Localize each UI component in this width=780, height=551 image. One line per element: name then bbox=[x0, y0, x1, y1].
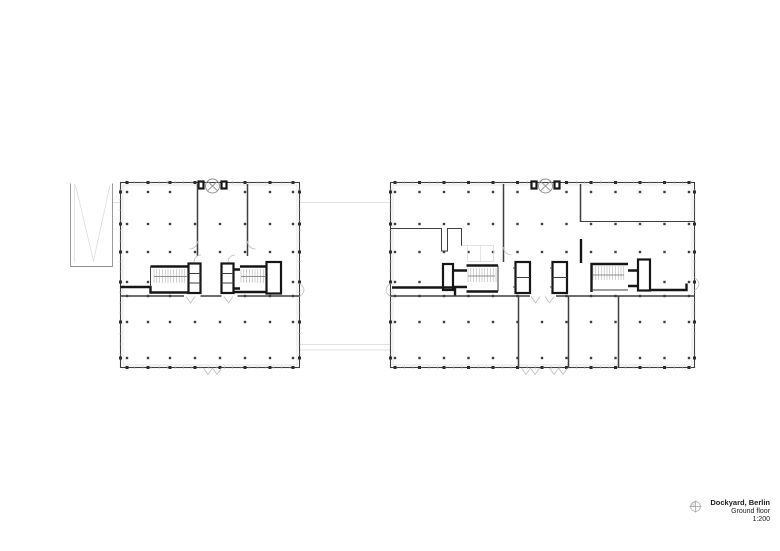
elevator-shaft bbox=[222, 264, 234, 294]
heavy-wall bbox=[392, 288, 455, 296]
door-swing bbox=[190, 241, 256, 249]
column-dot bbox=[292, 223, 294, 225]
column-dot bbox=[219, 251, 221, 253]
column-dot bbox=[590, 251, 592, 253]
project-title: Dockyard, Berlin bbox=[710, 499, 770, 508]
column-dot bbox=[614, 191, 616, 193]
facade-column bbox=[119, 251, 122, 254]
facade-column bbox=[244, 366, 247, 369]
shaft-light bbox=[462, 246, 494, 262]
column-dot bbox=[590, 321, 592, 323]
column-dot bbox=[147, 281, 149, 283]
facade-column bbox=[126, 366, 129, 369]
column-dot bbox=[688, 357, 690, 359]
facade-column bbox=[688, 181, 691, 184]
column-dot bbox=[590, 191, 592, 193]
facade-column bbox=[541, 366, 544, 369]
core-right bbox=[194, 255, 281, 294]
revolving-door-entrance bbox=[199, 179, 227, 193]
facade-column bbox=[292, 366, 295, 369]
column-dot bbox=[516, 251, 518, 253]
facade-column bbox=[693, 321, 696, 324]
facade-column bbox=[492, 366, 495, 369]
column-dot bbox=[443, 321, 445, 323]
facade-column bbox=[244, 181, 247, 184]
facade-column bbox=[614, 181, 617, 184]
ramp-slope-lines bbox=[75, 184, 111, 263]
column-dot bbox=[688, 281, 690, 283]
door-swing bbox=[194, 255, 235, 262]
column-dot bbox=[126, 191, 128, 193]
column-dot bbox=[590, 357, 592, 359]
facade-column bbox=[147, 181, 150, 184]
column-dot bbox=[663, 357, 665, 359]
column-dot bbox=[418, 321, 420, 323]
column-dot bbox=[639, 357, 641, 359]
double-door bbox=[522, 368, 568, 375]
facade-column bbox=[394, 181, 397, 184]
facade-column bbox=[119, 281, 122, 284]
column-dot bbox=[394, 281, 396, 283]
column-dot bbox=[688, 191, 690, 193]
column-dot bbox=[492, 321, 494, 323]
facade-column bbox=[688, 366, 691, 369]
facade-column bbox=[298, 251, 301, 254]
facade-column bbox=[126, 181, 129, 184]
facade-column bbox=[119, 223, 122, 226]
column-dot bbox=[418, 357, 420, 359]
column-dot bbox=[269, 191, 271, 193]
exit-door-swing bbox=[300, 284, 305, 297]
service-shaft bbox=[443, 264, 453, 290]
column-dot bbox=[292, 251, 294, 253]
facade-column bbox=[565, 181, 568, 184]
column-dot bbox=[126, 251, 128, 253]
column-dot bbox=[541, 223, 543, 225]
facade-column bbox=[467, 181, 470, 184]
lobby-walls bbox=[198, 184, 248, 256]
column-dot bbox=[219, 357, 221, 359]
floor-label: Ground floor bbox=[710, 508, 770, 517]
facade-column bbox=[298, 223, 301, 226]
column-dot bbox=[467, 223, 469, 225]
column-dot bbox=[467, 321, 469, 323]
facade-column bbox=[614, 366, 617, 369]
facade-column bbox=[147, 366, 150, 369]
entrance-door-leaf bbox=[532, 182, 537, 189]
entrance-door-leaf bbox=[555, 182, 560, 189]
column-dot bbox=[614, 357, 616, 359]
facade-column bbox=[693, 191, 696, 194]
partition-walls bbox=[519, 296, 619, 368]
facade-column bbox=[418, 366, 421, 369]
column-dot bbox=[169, 357, 171, 359]
floor-plan-drawing bbox=[0, 0, 780, 551]
facade-column bbox=[590, 181, 593, 184]
column-dot bbox=[639, 223, 641, 225]
column-dot bbox=[443, 191, 445, 193]
facade-column bbox=[639, 181, 642, 184]
facade-column bbox=[693, 281, 696, 284]
facade-column bbox=[389, 251, 392, 254]
column-dot bbox=[418, 251, 420, 253]
column-dot bbox=[492, 191, 494, 193]
facade-column bbox=[269, 366, 272, 369]
column-dot bbox=[541, 357, 543, 359]
heavy-wall bbox=[650, 284, 687, 291]
service-shaft bbox=[267, 262, 282, 294]
facade-column bbox=[298, 191, 301, 194]
column-dot bbox=[394, 321, 396, 323]
column-dot bbox=[467, 191, 469, 193]
column-dot bbox=[169, 251, 171, 253]
column-dot bbox=[541, 321, 543, 323]
column-dot bbox=[244, 357, 246, 359]
column-dot bbox=[639, 191, 641, 193]
column-dot bbox=[126, 281, 128, 283]
column-dot bbox=[516, 223, 518, 225]
elevator-bank bbox=[513, 262, 567, 293]
column-dot bbox=[614, 223, 616, 225]
building-left bbox=[119, 179, 304, 375]
column-dot bbox=[292, 321, 294, 323]
facade-column bbox=[443, 181, 446, 184]
column-dot bbox=[394, 357, 396, 359]
facade-column bbox=[119, 191, 122, 194]
column-dot bbox=[614, 321, 616, 323]
entrance-door-leaf bbox=[199, 182, 204, 189]
door-swing bbox=[504, 247, 512, 255]
column-dot bbox=[443, 357, 445, 359]
column-dot bbox=[244, 223, 246, 225]
facade-column bbox=[693, 251, 696, 254]
column-dot bbox=[688, 251, 690, 253]
facade-column bbox=[516, 181, 519, 184]
column-dot bbox=[219, 223, 221, 225]
facade-column bbox=[418, 181, 421, 184]
facade-column bbox=[443, 366, 446, 369]
facade-column bbox=[194, 366, 197, 369]
column-dot bbox=[244, 321, 246, 323]
column-dot bbox=[663, 191, 665, 193]
facade-column bbox=[389, 223, 392, 226]
facade-column bbox=[389, 357, 392, 360]
column-dot bbox=[565, 321, 567, 323]
parking-ramp bbox=[71, 184, 113, 267]
facade-column bbox=[194, 181, 197, 184]
corridor-doors bbox=[531, 297, 554, 304]
column-dot bbox=[688, 223, 690, 225]
column-dot bbox=[194, 251, 196, 253]
column-dot bbox=[292, 281, 294, 283]
facade-column bbox=[119, 321, 122, 324]
column-dot bbox=[126, 357, 128, 359]
column-dot bbox=[418, 223, 420, 225]
column-dot bbox=[194, 357, 196, 359]
column-dot bbox=[147, 223, 149, 225]
column-dot bbox=[126, 321, 128, 323]
scale-label: 1:200 bbox=[710, 516, 770, 525]
column-dot bbox=[169, 191, 171, 193]
column-dot bbox=[194, 321, 196, 323]
column-dot bbox=[394, 251, 396, 253]
revolving-door-entrance bbox=[532, 179, 560, 193]
title-block: Dockyard, Berlin Ground floor 1:200 bbox=[688, 499, 770, 525]
core-connectors bbox=[628, 271, 638, 287]
column-dot bbox=[194, 223, 196, 225]
north-compass-icon bbox=[688, 499, 703, 514]
facade-column bbox=[389, 321, 392, 324]
column-dot bbox=[565, 357, 567, 359]
column-dot bbox=[418, 281, 420, 283]
column-dot bbox=[169, 321, 171, 323]
column-dot bbox=[418, 191, 420, 193]
column-dot bbox=[590, 223, 592, 225]
core-right bbox=[592, 260, 687, 293]
facade-column bbox=[292, 181, 295, 184]
column-dot bbox=[244, 251, 246, 253]
facade-column bbox=[663, 181, 666, 184]
column-dot bbox=[219, 321, 221, 323]
column-dot bbox=[639, 251, 641, 253]
elevator-shaft bbox=[189, 264, 201, 294]
column-dot bbox=[565, 191, 567, 193]
column-dot bbox=[292, 357, 294, 359]
core-left bbox=[121, 264, 201, 294]
facade-column bbox=[169, 366, 172, 369]
facade-column bbox=[298, 281, 301, 284]
facade-column bbox=[298, 357, 301, 360]
column-dot bbox=[663, 281, 665, 283]
column-dot bbox=[147, 321, 149, 323]
facade-column bbox=[467, 366, 470, 369]
column-dot bbox=[292, 191, 294, 193]
column-dot bbox=[269, 251, 271, 253]
core-connectors bbox=[453, 271, 467, 288]
column-dot bbox=[147, 357, 149, 359]
facade-column bbox=[389, 191, 392, 194]
heavy-wall bbox=[121, 287, 189, 293]
column-dot bbox=[147, 251, 149, 253]
building-right bbox=[386, 179, 699, 375]
facade-column bbox=[298, 321, 301, 324]
column-dot bbox=[467, 357, 469, 359]
column-dot bbox=[639, 321, 641, 323]
facade-column bbox=[492, 181, 495, 184]
facade-column bbox=[269, 181, 272, 184]
entrance-door-leaf bbox=[222, 182, 227, 189]
column-dot bbox=[147, 191, 149, 193]
column-dot bbox=[565, 251, 567, 253]
column-dot bbox=[516, 191, 518, 193]
column-dot bbox=[244, 191, 246, 193]
column-dot bbox=[541, 251, 543, 253]
column-dot bbox=[269, 357, 271, 359]
column-dot bbox=[269, 321, 271, 323]
facade-column bbox=[394, 366, 397, 369]
column-dot bbox=[663, 321, 665, 323]
facade-column bbox=[663, 366, 666, 369]
facade-column bbox=[639, 366, 642, 369]
column-dot bbox=[443, 223, 445, 225]
column-dot bbox=[688, 321, 690, 323]
column-dot bbox=[565, 223, 567, 225]
column-dot bbox=[394, 191, 396, 193]
column-dot bbox=[663, 251, 665, 253]
facade-column bbox=[693, 357, 696, 360]
room-wall-upper-left bbox=[391, 229, 462, 252]
corridor-doors bbox=[186, 297, 233, 304]
column-dot bbox=[126, 223, 128, 225]
column-dot bbox=[394, 223, 396, 225]
column-dot bbox=[614, 251, 616, 253]
column-dot bbox=[492, 357, 494, 359]
facade-column bbox=[169, 181, 172, 184]
facade-column bbox=[389, 281, 392, 284]
column-dot bbox=[169, 223, 171, 225]
facade-column bbox=[693, 223, 696, 226]
column-dot bbox=[269, 223, 271, 225]
column-dot bbox=[492, 223, 494, 225]
elevator-shaft bbox=[638, 260, 650, 291]
facade-column bbox=[119, 357, 122, 360]
facade-column bbox=[590, 366, 593, 369]
column-dot bbox=[663, 223, 665, 225]
